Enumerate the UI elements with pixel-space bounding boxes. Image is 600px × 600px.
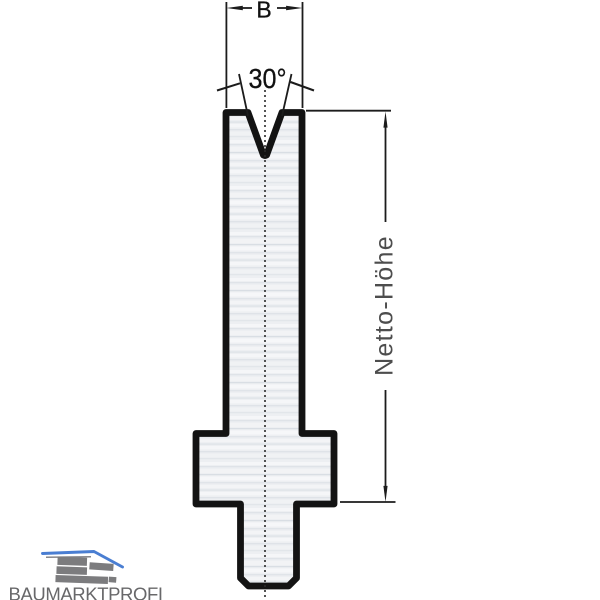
svg-text:B: B [256, 0, 271, 23]
svg-text:Netto-Höhe: Netto-Höhe [370, 235, 398, 376]
svg-text:30°: 30° [249, 63, 287, 94]
svg-text:BAUMARKTPROFI: BAUMARKTPROFI [9, 584, 163, 600]
